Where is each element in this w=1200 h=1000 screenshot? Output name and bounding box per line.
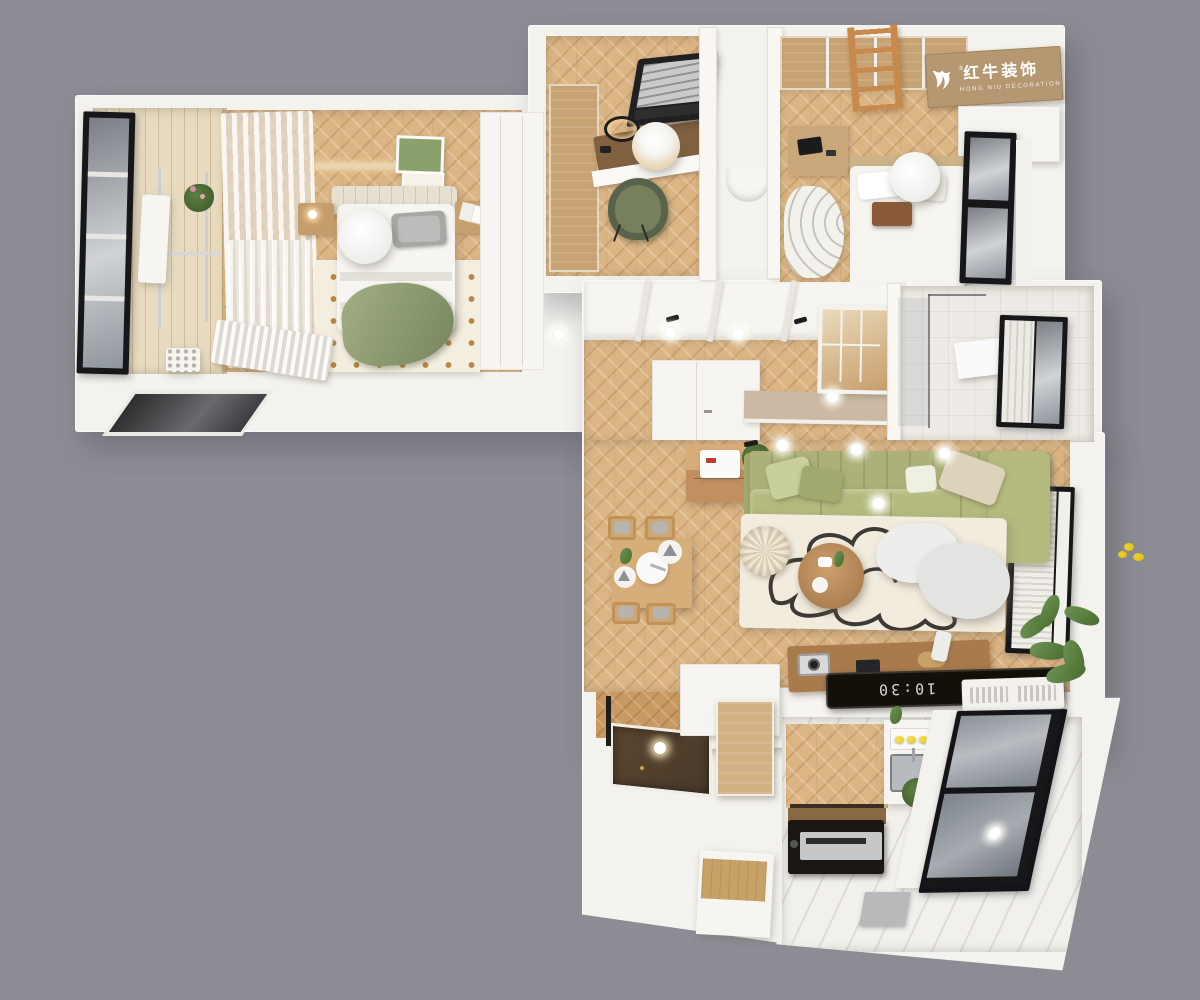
napkin xyxy=(663,544,677,556)
bottom-room-interior xyxy=(762,692,1124,982)
balcony-window xyxy=(77,111,136,374)
downlight xyxy=(552,328,565,341)
entry-cabinet-wood-front xyxy=(716,700,774,796)
pendant-lamp-top xyxy=(338,210,392,264)
window-glass xyxy=(968,137,1010,200)
dining-chair xyxy=(608,516,636,540)
balcony-window-glass xyxy=(83,118,130,369)
downlight xyxy=(776,439,789,452)
phone xyxy=(826,150,836,156)
wall-art-green xyxy=(395,135,444,175)
sofa-pillow-small xyxy=(905,465,937,494)
plant-leaf xyxy=(1038,593,1062,630)
wall-light-bar xyxy=(316,163,396,169)
floor-mat-gray xyxy=(859,892,911,926)
glass-grid-partition xyxy=(817,305,893,394)
camera-lens xyxy=(808,658,820,670)
wardrobe-door-line xyxy=(500,116,501,366)
downlight xyxy=(872,497,885,510)
plant-leaf xyxy=(1045,661,1087,684)
bedroom2-window xyxy=(959,131,1016,285)
hanging-towel xyxy=(138,194,171,283)
pebble-tray xyxy=(166,348,200,372)
laundry-appliance xyxy=(788,820,884,874)
downlight xyxy=(850,443,863,456)
window-glass xyxy=(946,714,1052,788)
desk-item-dark xyxy=(600,146,611,153)
tissue-box-logo xyxy=(706,458,716,463)
napkin xyxy=(618,570,630,581)
round-lamp-chair xyxy=(632,122,680,170)
pendant-lamp-bedroom2 xyxy=(890,152,940,202)
bottom-wood-counter xyxy=(786,724,888,808)
floorplan-render: ®红牛装饰 HONG NIU DECORATION xyxy=(0,0,1200,1000)
dining-chair xyxy=(646,603,676,625)
lemon xyxy=(907,736,916,743)
tray-slot xyxy=(806,838,866,844)
wardrobe-white xyxy=(480,112,544,370)
window-mullion xyxy=(84,295,124,301)
duvet-stripe xyxy=(340,272,452,281)
camera xyxy=(798,653,831,676)
bed-pillow-gray-small xyxy=(398,215,441,242)
chair-cushion xyxy=(653,607,669,619)
entry-step-wood-top xyxy=(701,858,767,901)
cutlery xyxy=(650,563,666,571)
shower-glass-tint xyxy=(898,298,928,426)
wavy-rug xyxy=(784,186,844,278)
yellow-speck xyxy=(1118,551,1127,558)
wardrobe-door-line xyxy=(522,116,523,366)
coffee-table-round xyxy=(798,543,864,609)
yellow-speck xyxy=(1133,553,1144,561)
bed2-tray xyxy=(872,202,912,226)
saucer xyxy=(812,577,828,593)
kitchen-counter xyxy=(744,391,907,426)
window-sill xyxy=(1016,140,1032,288)
wardrobe-divider xyxy=(826,38,829,88)
shower-glass-edge xyxy=(928,294,986,296)
bedside-lamp xyxy=(308,210,317,219)
window-mullion xyxy=(88,172,128,178)
flower-pink xyxy=(200,194,205,199)
tissue-box xyxy=(700,450,740,478)
dining-chair xyxy=(612,602,640,624)
wall-study-hall xyxy=(700,28,716,280)
watermark-board: ®红牛装饰 HONG NIU DECORATION xyxy=(924,46,1063,108)
study-wardrobe-wood xyxy=(549,84,599,272)
daybed-slats xyxy=(636,58,709,108)
entry-pendant-light xyxy=(654,742,666,754)
appliance-knob xyxy=(790,840,798,848)
window-glass xyxy=(1033,321,1063,424)
downlight xyxy=(732,327,745,340)
gold-accent-dot xyxy=(640,766,644,770)
window-glass xyxy=(966,207,1008,278)
table-plant-sprig xyxy=(834,551,844,567)
chair-cushion xyxy=(652,521,668,534)
appliance-tray xyxy=(800,832,882,860)
downlight xyxy=(938,447,951,460)
wood-ladder xyxy=(847,24,903,111)
grid-line xyxy=(822,343,880,346)
large-plant xyxy=(1012,588,1112,698)
dining-plate xyxy=(614,566,636,588)
downlight xyxy=(664,326,677,339)
tv-clock: 10:30 xyxy=(876,679,937,699)
window-mullion xyxy=(86,233,126,239)
window-glass xyxy=(927,792,1035,878)
vertical-blinds xyxy=(1001,320,1035,423)
cup xyxy=(818,557,832,567)
bathroom-window xyxy=(996,315,1068,429)
nightstand-left xyxy=(298,203,334,235)
sofa-pillow xyxy=(798,465,844,503)
faucet xyxy=(912,748,915,762)
shower-glass-edge xyxy=(928,294,930,428)
dining-plate xyxy=(658,540,682,564)
dining-chair xyxy=(645,516,675,540)
laptop xyxy=(797,136,823,155)
flower-pink xyxy=(190,186,196,192)
pleated-ottoman xyxy=(740,526,790,576)
downlight xyxy=(826,390,839,403)
chair-cushion xyxy=(618,606,634,618)
cabinet-handle xyxy=(704,410,712,413)
lemon xyxy=(895,736,904,743)
bull-logo-icon xyxy=(927,67,955,95)
brand-name: 红牛装饰 xyxy=(963,61,1040,83)
plant-leaf xyxy=(1062,601,1101,631)
yellow-speck xyxy=(1124,543,1134,551)
coat-rack xyxy=(606,696,611,746)
chair-cushion xyxy=(614,521,630,534)
